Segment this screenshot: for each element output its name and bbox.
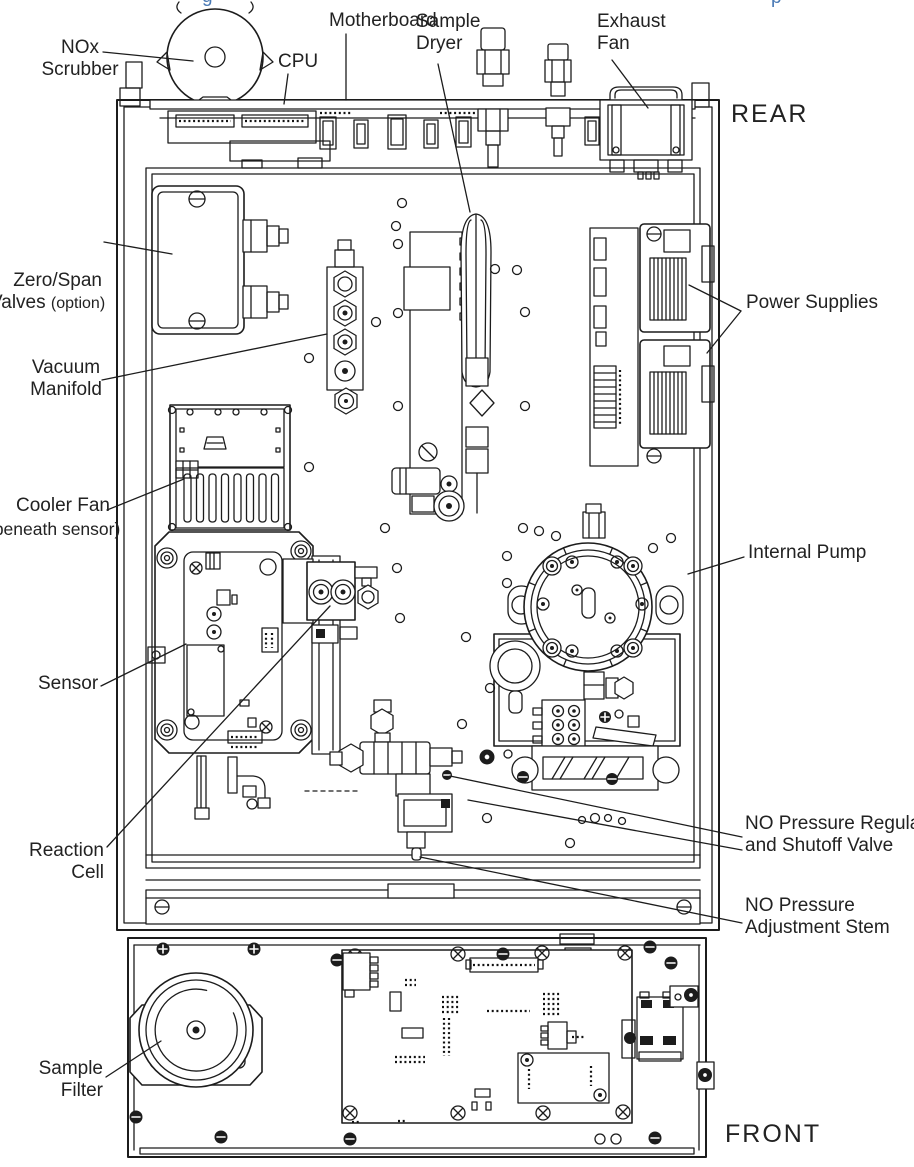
cooler-fan-drawing: [169, 405, 292, 531]
label-zero-span-line1: Zero/Span: [0, 270, 102, 292]
label-power-supplies: Power Supplies: [746, 292, 878, 314]
label-rear: REAR: [731, 103, 808, 125]
label-cooler-fan: Cooler Fan: [16, 495, 110, 517]
label-cpu: CPU: [278, 51, 318, 73]
instrument-layout-drawing: [0, 0, 914, 1167]
label-nox-scrubber: NOx Scrubber: [30, 37, 130, 81]
label-zero-span-valves: Zero/SpanValves (option): [0, 226, 102, 337]
diagram-page: g p NOx Scrubber CPU Motherboard Sample …: [0, 0, 914, 1167]
label-sensor: Sensor: [38, 673, 98, 695]
label-zero-span-line2: Valves: [0, 292, 51, 313]
power-supplies-drawing: [590, 224, 714, 466]
label-front: FRONT: [725, 1123, 821, 1145]
label-zero-span-option: (option): [51, 295, 105, 312]
label-no-pressure-adjustment-stem: NO Pressure Adjustment Stem: [745, 895, 890, 939]
label-reaction-cell: Reaction Cell: [24, 840, 104, 884]
label-exhaust-fan: Exhaust Fan: [597, 11, 666, 55]
cropped-text-fragment-right: p: [771, 0, 782, 9]
front-panel-drawing: [128, 934, 714, 1157]
label-vacuum-manifold: Vacuum Manifold: [26, 357, 106, 401]
nox-scrubber-drawing: [157, 2, 273, 105]
label-sample-dryer: Sample Dryer: [416, 11, 480, 55]
label-sample-filter: Sample Filter: [33, 1058, 103, 1102]
label-no-pressure-regulator: NO Pressure Regulator and Shutoff Valve: [745, 813, 914, 857]
label-cooler-fan-note: (beneath sensor): [0, 518, 120, 540]
cropped-text-fragment-left: g: [202, 0, 213, 8]
label-internal-pump: Internal Pump: [748, 542, 866, 564]
